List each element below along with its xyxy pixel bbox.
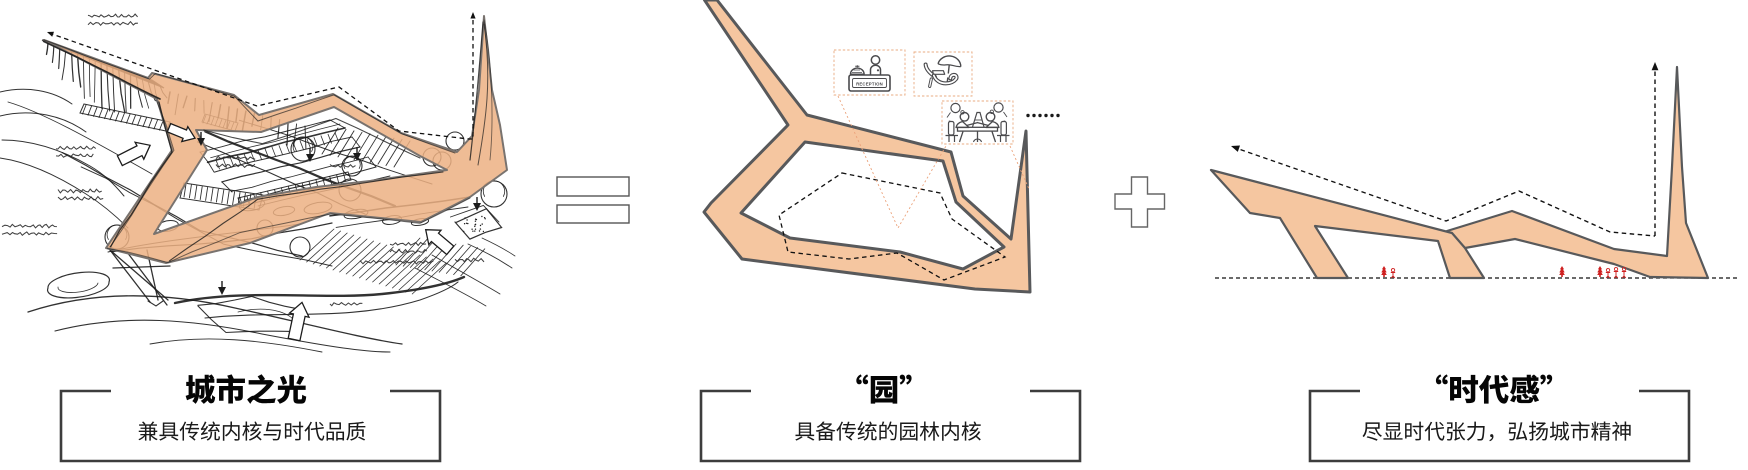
svg-text:RECEPTION: RECEPTION [856, 82, 883, 87]
